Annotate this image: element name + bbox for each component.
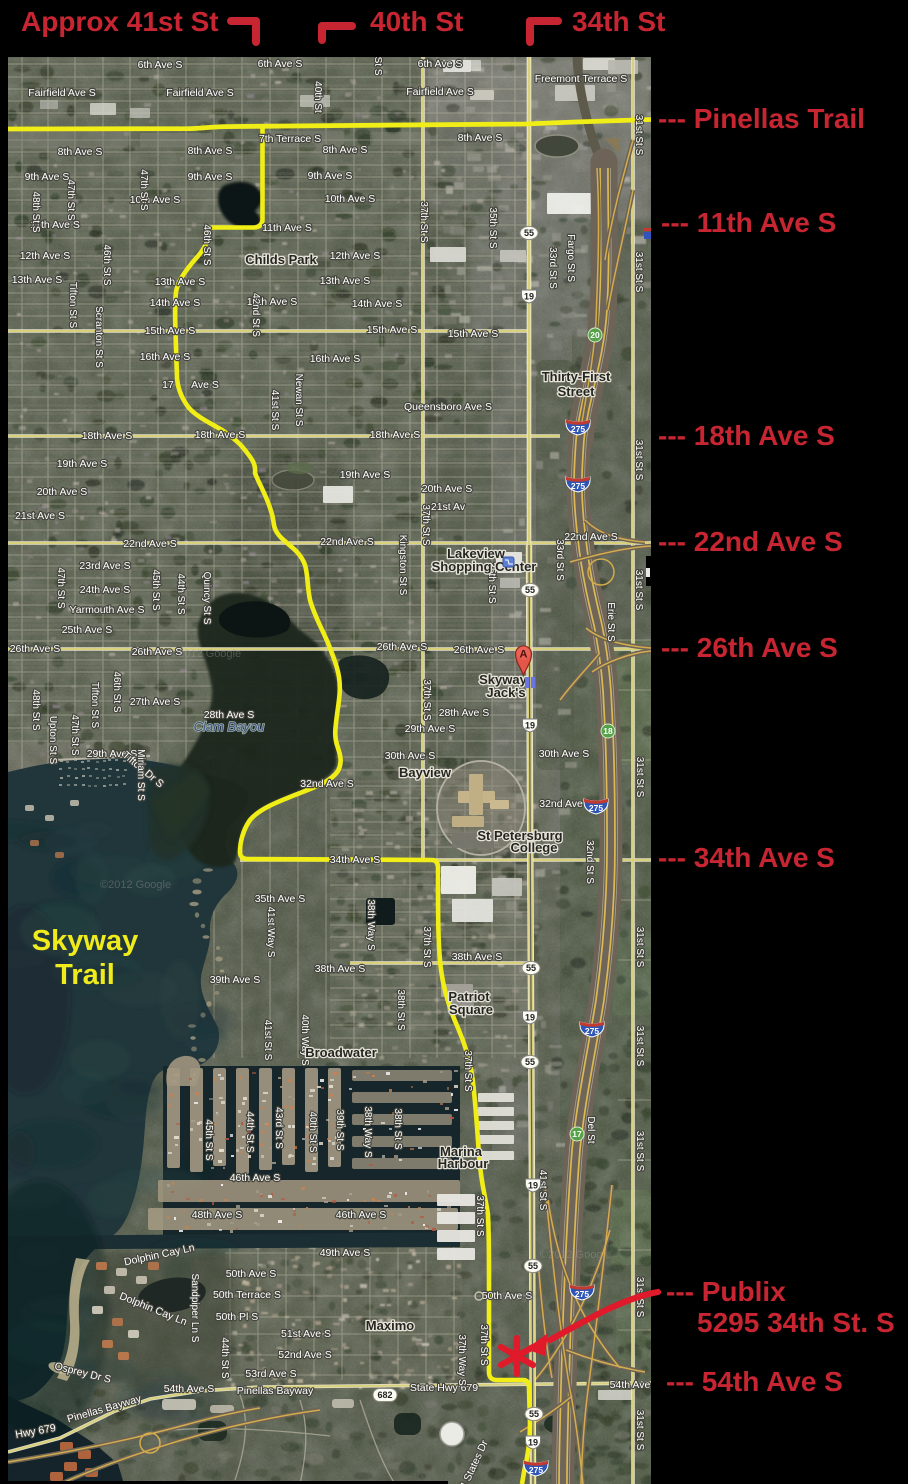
svg-text:31st St S: 31st St S: [634, 1131, 645, 1172]
svg-text:10th Ave S: 10th Ave S: [325, 193, 376, 205]
svg-text:31st St S: 31st St S: [633, 570, 644, 611]
svg-text:37th St S: 37th St S: [421, 926, 432, 967]
svg-text:Newan St S: Newan St S: [293, 374, 304, 427]
svg-text:26th Ave S: 26th Ave S: [377, 641, 428, 653]
svg-text:Yarmouth Ave S: Yarmouth Ave S: [70, 604, 145, 616]
svg-text:33rd St S: 33rd St S: [554, 539, 565, 581]
svg-text:34th Ave S: 34th Ave S: [330, 854, 381, 866]
svg-text:26th Ave S: 26th Ave S: [10, 643, 61, 655]
svg-text:47th St S: 47th St S: [69, 714, 80, 755]
svg-text:8th Ave S: 8th Ave S: [458, 132, 503, 144]
svg-text:39th Ave S: 39th Ave S: [210, 974, 261, 986]
svg-text:20: 20: [590, 330, 600, 340]
svg-text:48th St S: 48th St S: [30, 689, 41, 730]
svg-text:53rd Ave S: 53rd Ave S: [245, 1368, 296, 1380]
svg-text:22nd Ave S: 22nd Ave S: [564, 531, 618, 543]
svg-text:51st Ave S: 51st Ave S: [281, 1328, 331, 1340]
svg-text:6th Ave S: 6th Ave S: [138, 59, 183, 71]
svg-text:Queensboro Ave S: Queensboro Ave S: [404, 401, 492, 413]
svg-text:15th Ave S: 15th Ave S: [367, 324, 418, 336]
svg-text:Bayview: Bayview: [399, 765, 452, 780]
svg-text:50th Terrace S: 50th Terrace S: [213, 1289, 281, 1301]
svg-text:43rd St S: 43rd St S: [273, 1107, 284, 1149]
svg-text:40th St: 40th St: [370, 6, 463, 37]
svg-text:47th St S: 47th St S: [55, 567, 66, 608]
svg-text:27th Ave S: 27th Ave S: [130, 696, 181, 708]
svg-text:Pinellas Bayway: Pinellas Bayway: [237, 1385, 314, 1397]
svg-text:18th Ave S: 18th Ave S: [195, 429, 246, 441]
svg-text:Skyway: Skyway: [32, 925, 138, 957]
svg-text:Maximo: Maximo: [366, 1318, 414, 1333]
svg-text:20th Ave S: 20th Ave S: [37, 486, 88, 498]
svg-text:Clam Bayou: Clam Bayou: [194, 719, 265, 734]
svg-text:19th Ave S: 19th Ave S: [340, 469, 391, 481]
svg-text:37th Way S: 37th Way S: [456, 1334, 467, 1386]
svg-text:41st St S: 41st St S: [269, 390, 280, 431]
svg-text:24th Ave S: 24th Ave S: [80, 584, 131, 596]
svg-text:25th Ave S: 25th Ave S: [62, 624, 113, 636]
svg-text:46th St S: 46th St S: [111, 671, 122, 712]
svg-text:31st St S: 31st St S: [633, 115, 644, 156]
svg-text:52nd Ave S: 52nd Ave S: [278, 1349, 332, 1361]
svg-text:11th Ave S: 11th Ave S: [262, 222, 312, 234]
svg-text:--- 18th Ave S: --- 18th Ave S: [658, 420, 835, 451]
svg-text:37th St S: 37th St S: [420, 504, 431, 545]
svg-text:41st Way S: 41st Way S: [265, 907, 276, 958]
svg-text:38th Ave S: 38th Ave S: [452, 951, 503, 963]
svg-text:Broadwater: Broadwater: [305, 1045, 377, 1060]
svg-text:Upton St S: Upton St S: [47, 716, 58, 765]
svg-text:6th Ave S: 6th Ave S: [418, 58, 463, 70]
svg-text:9th Ave S: 9th Ave S: [25, 171, 70, 183]
svg-text:13th Ave S: 13th Ave S: [320, 275, 371, 287]
svg-text:Google: Google: [500, 1291, 535, 1303]
svg-text:31st St S: 31st St S: [633, 440, 644, 481]
svg-text:17: 17: [572, 1129, 582, 1139]
svg-text:28th Ave S: 28th Ave S: [439, 707, 490, 719]
svg-text:26th Ave S: 26th Ave S: [454, 644, 505, 656]
svg-text:37th St S: 37th St S: [418, 201, 429, 242]
svg-text:15th Ave S: 15th Ave S: [448, 328, 499, 340]
svg-text:--- 11th Ave S: --- 11th Ave S: [661, 207, 836, 238]
svg-text:Childs Park: Childs Park: [245, 252, 317, 267]
svg-text:Approx 41st St: Approx 41st St: [21, 6, 219, 37]
svg-text:50th Pl S: 50th Pl S: [216, 1311, 259, 1323]
svg-text:8th Ave S: 8th Ave S: [188, 145, 233, 157]
svg-text:30th Ave S: 30th Ave S: [539, 748, 590, 760]
svg-text:18th Ave S: 18th Ave S: [82, 430, 133, 442]
svg-text:©2012 Google: ©2012 Google: [540, 1249, 611, 1261]
svg-text:41st St S: 41st St S: [537, 1170, 548, 1211]
svg-text:40th St: 40th St: [312, 81, 323, 113]
svg-text:14th Ave S: 14th Ave S: [352, 298, 403, 310]
svg-text:Kingston St S: Kingston St S: [397, 535, 408, 596]
svg-text:37th St S: 37th St S: [421, 679, 432, 720]
svg-text:46th St S: 46th St S: [101, 244, 112, 285]
svg-text:--- 26th Ave S: --- 26th Ave S: [661, 632, 838, 663]
svg-text:54th Ave: 54th Ave: [610, 1379, 651, 1391]
svg-text:47th St S: 47th St S: [65, 179, 76, 220]
svg-text:37th St S: 37th St S: [462, 1050, 473, 1091]
svg-text:19th Ave S: 19th Ave S: [57, 458, 108, 470]
svg-text:31st St S: 31st St S: [634, 1026, 645, 1067]
svg-text:21st Av: 21st Av: [431, 501, 466, 513]
svg-text:Trail: Trail: [55, 959, 115, 991]
svg-text:--- Pinellas Trail: --- Pinellas Trail: [658, 103, 865, 134]
svg-text:16th Ave S: 16th Ave S: [310, 353, 361, 365]
svg-text:Sandpiper Ln S: Sandpiper Ln S: [189, 1274, 200, 1343]
svg-text:18: 18: [603, 726, 613, 736]
svg-text:31st St S: 31st St S: [633, 252, 644, 293]
svg-text:38th St S: 38th St S: [395, 989, 406, 1030]
svg-text:Fargo St S: Fargo St S: [565, 234, 576, 282]
svg-text:46th Ave S: 46th Ave S: [230, 1172, 281, 1184]
svg-text:39th St S: 39th St S: [334, 1109, 345, 1150]
svg-text:13th Ave S: 13th Ave S: [155, 276, 206, 288]
svg-text:49th Ave S: 49th Ave S: [320, 1247, 371, 1259]
svg-text:6th Ave S: 6th Ave S: [258, 58, 303, 70]
svg-text:46th St S: 46th St S: [201, 224, 212, 265]
svg-text:50th Ave S: 50th Ave S: [226, 1268, 277, 1280]
svg-text:Shopping Center: Shopping Center: [432, 559, 537, 574]
svg-text:31st St S: 31st St S: [634, 757, 645, 798]
svg-text:Del St: Del St: [585, 1116, 596, 1143]
svg-text:Tifton St S: Tifton St S: [89, 682, 100, 729]
svg-text:45th St S: 45th St S: [150, 569, 161, 610]
svg-text:44th St S: 44th St S: [175, 573, 186, 614]
svg-text:31st St S: 31st St S: [634, 927, 645, 968]
svg-text:Street: Street: [558, 384, 596, 399]
svg-text:Ave S: Ave S: [191, 379, 219, 391]
svg-text:Square: Square: [449, 1002, 493, 1017]
svg-text:--- Publix: --- Publix: [666, 1276, 786, 1307]
svg-text:13th Ave S: 13th Ave S: [12, 274, 63, 286]
svg-text:17: 17: [162, 379, 174, 391]
svg-text:Jack's: Jack's: [486, 685, 525, 700]
svg-text:37th St S: 37th St S: [474, 1195, 485, 1236]
svg-text:21st Ave S: 21st Ave S: [15, 510, 65, 522]
svg-text:38th St S: 38th St S: [392, 1108, 403, 1149]
svg-text:41st St S: 41st St S: [262, 1020, 273, 1061]
svg-text:--- 54th Ave S: --- 54th Ave S: [666, 1366, 843, 1397]
svg-text:48th St S: 48th St S: [30, 191, 41, 232]
svg-text:12th Ave S: 12th Ave S: [20, 250, 71, 262]
svg-text:18th Ave S: 18th Ave S: [370, 429, 421, 441]
svg-text:8th Ave S: 8th Ave S: [323, 144, 368, 156]
svg-text:40th St S: 40th St S: [307, 1111, 318, 1152]
svg-text:38th Way S: 38th Way S: [365, 899, 376, 951]
svg-text:Erie St S: Erie St S: [605, 602, 616, 642]
svg-text:Fairfield Ave S: Fairfield Ave S: [28, 87, 96, 99]
svg-text:47th St S: 47th St S: [138, 169, 149, 210]
svg-text:35th St S: 35th St S: [487, 207, 498, 248]
svg-text:12th Ave S: 12th Ave S: [330, 250, 381, 262]
svg-text:33rd St S: 33rd St S: [547, 247, 558, 289]
svg-text:20th Ave S: 20th Ave S: [422, 483, 473, 495]
svg-text:10th Ave S: 10th Ave S: [130, 194, 181, 206]
svg-text:44th St S: 44th St S: [244, 1111, 255, 1152]
svg-text:A: A: [520, 649, 528, 661]
svg-text:34th St: 34th St: [572, 6, 665, 37]
svg-text:9th Ave S: 9th Ave S: [188, 171, 233, 183]
svg-text:32nd Ave S: 32nd Ave S: [300, 778, 354, 790]
svg-text:37th St S: 37th St S: [478, 1324, 489, 1365]
svg-text:38th Way S: 38th Way S: [362, 1106, 373, 1158]
svg-text:29th Ave S: 29th Ave S: [405, 723, 456, 735]
svg-text:42nd St S: 42nd St S: [250, 293, 261, 337]
svg-text:College: College: [511, 840, 558, 855]
svg-text:15th Ave S: 15th Ave S: [145, 325, 196, 337]
svg-text:©2012 Google: ©2012 Google: [170, 648, 241, 660]
svg-text:Harbour: Harbour: [438, 1156, 489, 1171]
svg-text:5295 34th St. S: 5295 34th St. S: [697, 1307, 895, 1338]
svg-text:Quincy St S: Quincy St S: [201, 572, 212, 625]
svg-text:14th Ave S: 14th Ave S: [150, 297, 201, 309]
svg-text:44th St S: 44th St S: [219, 1337, 230, 1378]
svg-text:38th Ave S: 38th Ave S: [315, 963, 366, 975]
svg-text:54th Ave S: 54th Ave S: [164, 1383, 215, 1395]
svg-text:Tifton St S: Tifton St S: [67, 282, 78, 329]
svg-text:16th Ave S: 16th Ave S: [140, 351, 191, 363]
svg-text:35th Ave S: 35th Ave S: [255, 893, 306, 905]
svg-text:22nd Ave S: 22nd Ave S: [320, 536, 374, 548]
svg-text:32nd St S: 32nd St S: [584, 840, 595, 884]
svg-text:7th Terrace S: 7th Terrace S: [259, 133, 321, 145]
svg-text:Thirty-First: Thirty-First: [542, 369, 611, 384]
svg-text:Miriam St S: Miriam St S: [135, 749, 146, 801]
svg-text:Fairfield Ave S: Fairfield Ave S: [166, 87, 234, 99]
svg-text:46th Ave S: 46th Ave S: [336, 1209, 387, 1221]
svg-text:30th Ave S: 30th Ave S: [385, 750, 436, 762]
svg-text:48th Ave S: 48th Ave S: [192, 1209, 243, 1221]
svg-text:Fairfield Ave S: Fairfield Ave S: [406, 86, 474, 98]
svg-text:23rd Ave S: 23rd Ave S: [79, 560, 130, 572]
svg-text:22nd Ave S: 22nd Ave S: [123, 538, 177, 550]
svg-text:Freemont Terrace S: Freemont Terrace S: [535, 73, 628, 85]
svg-text:--- 22nd Ave S: --- 22nd Ave S: [658, 526, 843, 557]
svg-text:Scranton St S: Scranton St S: [93, 306, 104, 368]
svg-text:--- 34th Ave S: --- 34th Ave S: [658, 842, 835, 873]
svg-text:State Hwy 679: State Hwy 679: [410, 1382, 478, 1394]
svg-text:8th Ave S: 8th Ave S: [58, 146, 103, 158]
svg-text:9th Ave S: 9th Ave S: [308, 170, 353, 182]
svg-text:45th St S: 45th St S: [203, 1119, 214, 1160]
svg-text:31st St S: 31st St S: [634, 1410, 645, 1451]
svg-text:©2012 Google: ©2012 Google: [100, 879, 171, 891]
